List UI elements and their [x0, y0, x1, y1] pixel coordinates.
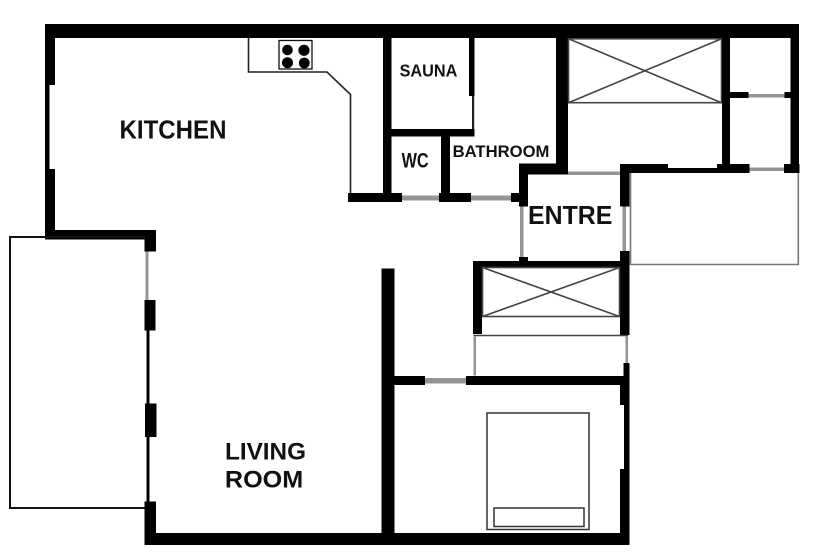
svg-text:BATHROOM: BATHROOM	[453, 142, 550, 161]
svg-text:WC: WC	[402, 150, 429, 173]
svg-text:KITCHEN: KITCHEN	[120, 116, 227, 144]
svg-text:ROOM: ROOM	[225, 466, 303, 493]
svg-text:LIVING: LIVING	[225, 439, 306, 466]
svg-text:SAUNA: SAUNA	[400, 61, 458, 81]
svg-text:ENTRE: ENTRE	[528, 202, 612, 230]
